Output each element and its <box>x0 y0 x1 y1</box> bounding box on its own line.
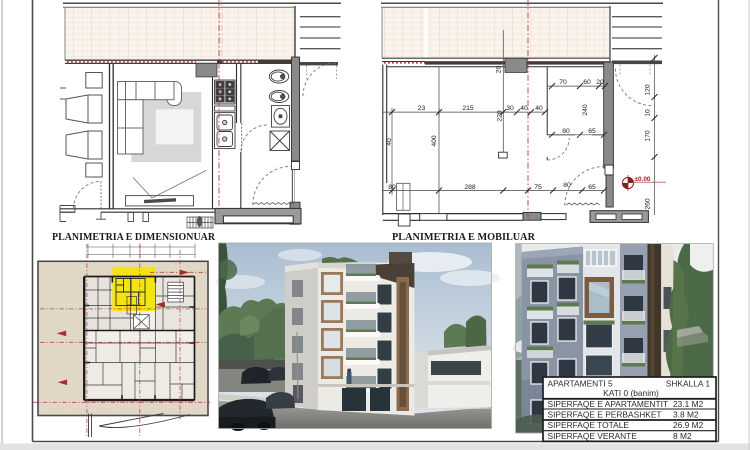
svg-text:PLANIMETRIA E DIMENSIONUAR: PLANIMETRIA E DIMENSIONUAR <box>52 231 215 243</box>
svg-text:8 M2: 8 M2 <box>673 431 692 441</box>
svg-text:10: 10 <box>645 109 652 117</box>
svg-text:240: 240 <box>582 104 589 116</box>
svg-text:PLANIMETRIA E MOBILUAR: PLANIMETRIA E MOBILUAR <box>392 231 535 243</box>
svg-text:SIPERFAQE TOTALE: SIPERFAQE TOTALE <box>548 420 630 430</box>
svg-text:220: 220 <box>497 110 504 122</box>
svg-text:80: 80 <box>562 128 570 135</box>
svg-text:40: 40 <box>520 105 528 112</box>
svg-text:80: 80 <box>563 182 571 189</box>
svg-text:288: 288 <box>464 184 476 191</box>
svg-text:400: 400 <box>431 135 438 147</box>
svg-text:70: 70 <box>559 79 567 86</box>
svg-text:260: 260 <box>645 198 652 210</box>
svg-text:23: 23 <box>418 105 426 112</box>
svg-text:80: 80 <box>388 184 396 191</box>
svg-text:23.1 M2: 23.1 M2 <box>673 399 704 409</box>
svg-text:65: 65 <box>588 128 596 135</box>
svg-text:170: 170 <box>645 130 652 142</box>
svg-text:KATI 0 (banim): KATI 0 (banim) <box>603 388 659 398</box>
svg-text:SHKALLA 1: SHKALLA 1 <box>666 379 711 389</box>
svg-text:215: 215 <box>462 105 474 112</box>
svg-text:20: 20 <box>596 79 604 86</box>
svg-text:75: 75 <box>534 184 542 191</box>
svg-text:APARTAMENTI 5: APARTAMENTI 5 <box>548 379 613 389</box>
svg-text:60: 60 <box>583 79 591 86</box>
svg-text:40: 40 <box>386 138 393 146</box>
svg-text:3.8 M2: 3.8 M2 <box>673 409 699 419</box>
svg-text:20: 20 <box>496 66 503 74</box>
svg-text:120: 120 <box>645 84 652 96</box>
svg-text:65: 65 <box>588 184 596 191</box>
svg-text:±0.00: ±0.00 <box>635 176 651 183</box>
svg-text:26.9 M2: 26.9 M2 <box>673 420 704 430</box>
svg-text:SIPERFAQE E APARTAMENTIT: SIPERFAQE E APARTAMENTIT <box>548 399 669 409</box>
svg-text:40: 40 <box>535 105 543 112</box>
svg-text:SIPERFAQE E PERBASHKET: SIPERFAQE E PERBASHKET <box>548 409 662 419</box>
svg-text:SIPERFAQE VERANTE: SIPERFAQE VERANTE <box>548 431 638 441</box>
svg-text:30: 30 <box>506 105 514 112</box>
